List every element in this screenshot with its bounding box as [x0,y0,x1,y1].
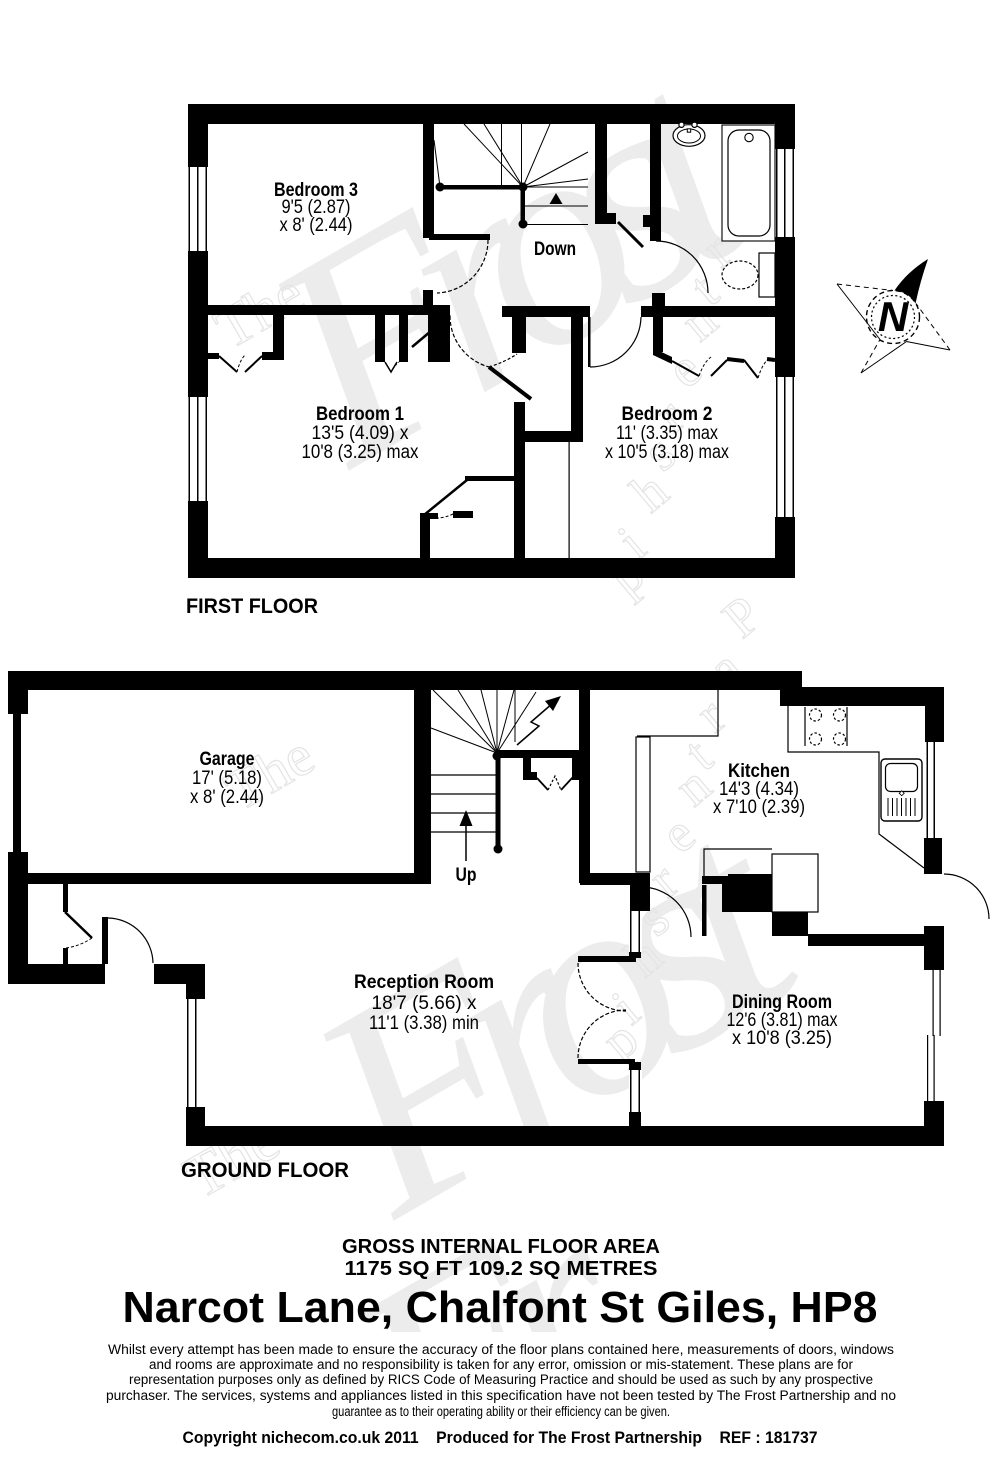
svg-text:18'7 (5.66) x: 18'7 (5.66) x [372,993,477,1014]
svg-text:GROUND FLOOR: GROUND FLOOR [181,1159,349,1182]
svg-text:GROSS INTERNAL FLOOR AREA: GROSS INTERNAL FLOOR AREA [342,1236,660,1258]
svg-text:17' (5.18): 17' (5.18) [192,768,262,789]
svg-text:13'5 (4.09) x: 13'5 (4.09) x [312,423,409,444]
svg-text:Bedroom 2: Bedroom 2 [622,404,713,425]
svg-text:10'8 (3.25) max: 10'8 (3.25) max [302,442,419,463]
svg-text:N: N [878,293,910,340]
svg-text:FIRST FLOOR: FIRST FLOOR [186,595,318,618]
svg-text:Whilst every attempt has been: Whilst every attempt has been made to en… [108,1342,894,1357]
svg-text:Narcot Lane, Chalfont St Giles: Narcot Lane, Chalfont St Giles, HP8 [123,1283,878,1332]
svg-text:1175 SQ FT 109.2 SQ METRES: 1175 SQ FT 109.2 SQ METRES [345,1258,658,1280]
svg-text:Up: Up [456,865,477,886]
svg-text:x 8' (2.44): x 8' (2.44) [280,215,353,236]
svg-text:x 10'5 (3.18) max: x 10'5 (3.18) max [605,442,729,463]
svg-text:11'1 (3.38) min: 11'1 (3.38) min [369,1013,479,1034]
svg-text:Copyright nichecom.co.uk 2011: Copyright nichecom.co.uk 2011 Produced f… [183,1429,818,1447]
svg-text:purchaser. The services, syst: purchaser. The services, systems and app… [106,1388,896,1403]
svg-text:x 7'10 (2.39): x 7'10 (2.39) [713,797,805,818]
svg-text:representation purposes only a: representation purposes only as defined … [129,1372,873,1387]
svg-text:Garage: Garage [200,749,255,770]
svg-text:Reception Room: Reception Room [354,972,494,993]
svg-text:Bedroom 1: Bedroom 1 [316,404,404,425]
svg-text:x 8' (2.44): x 8' (2.44) [190,787,264,808]
svg-text:guarantee as to their operatin: guarantee as to their operating ability … [332,1404,670,1419]
svg-text:x 10'8 (3.25): x 10'8 (3.25) [732,1028,832,1049]
svg-text:Down: Down [534,239,576,260]
svg-text:and rooms are approximate and: and rooms are approximate and no respons… [149,1357,853,1372]
svg-text:11' (3.35) max: 11' (3.35) max [616,423,718,444]
